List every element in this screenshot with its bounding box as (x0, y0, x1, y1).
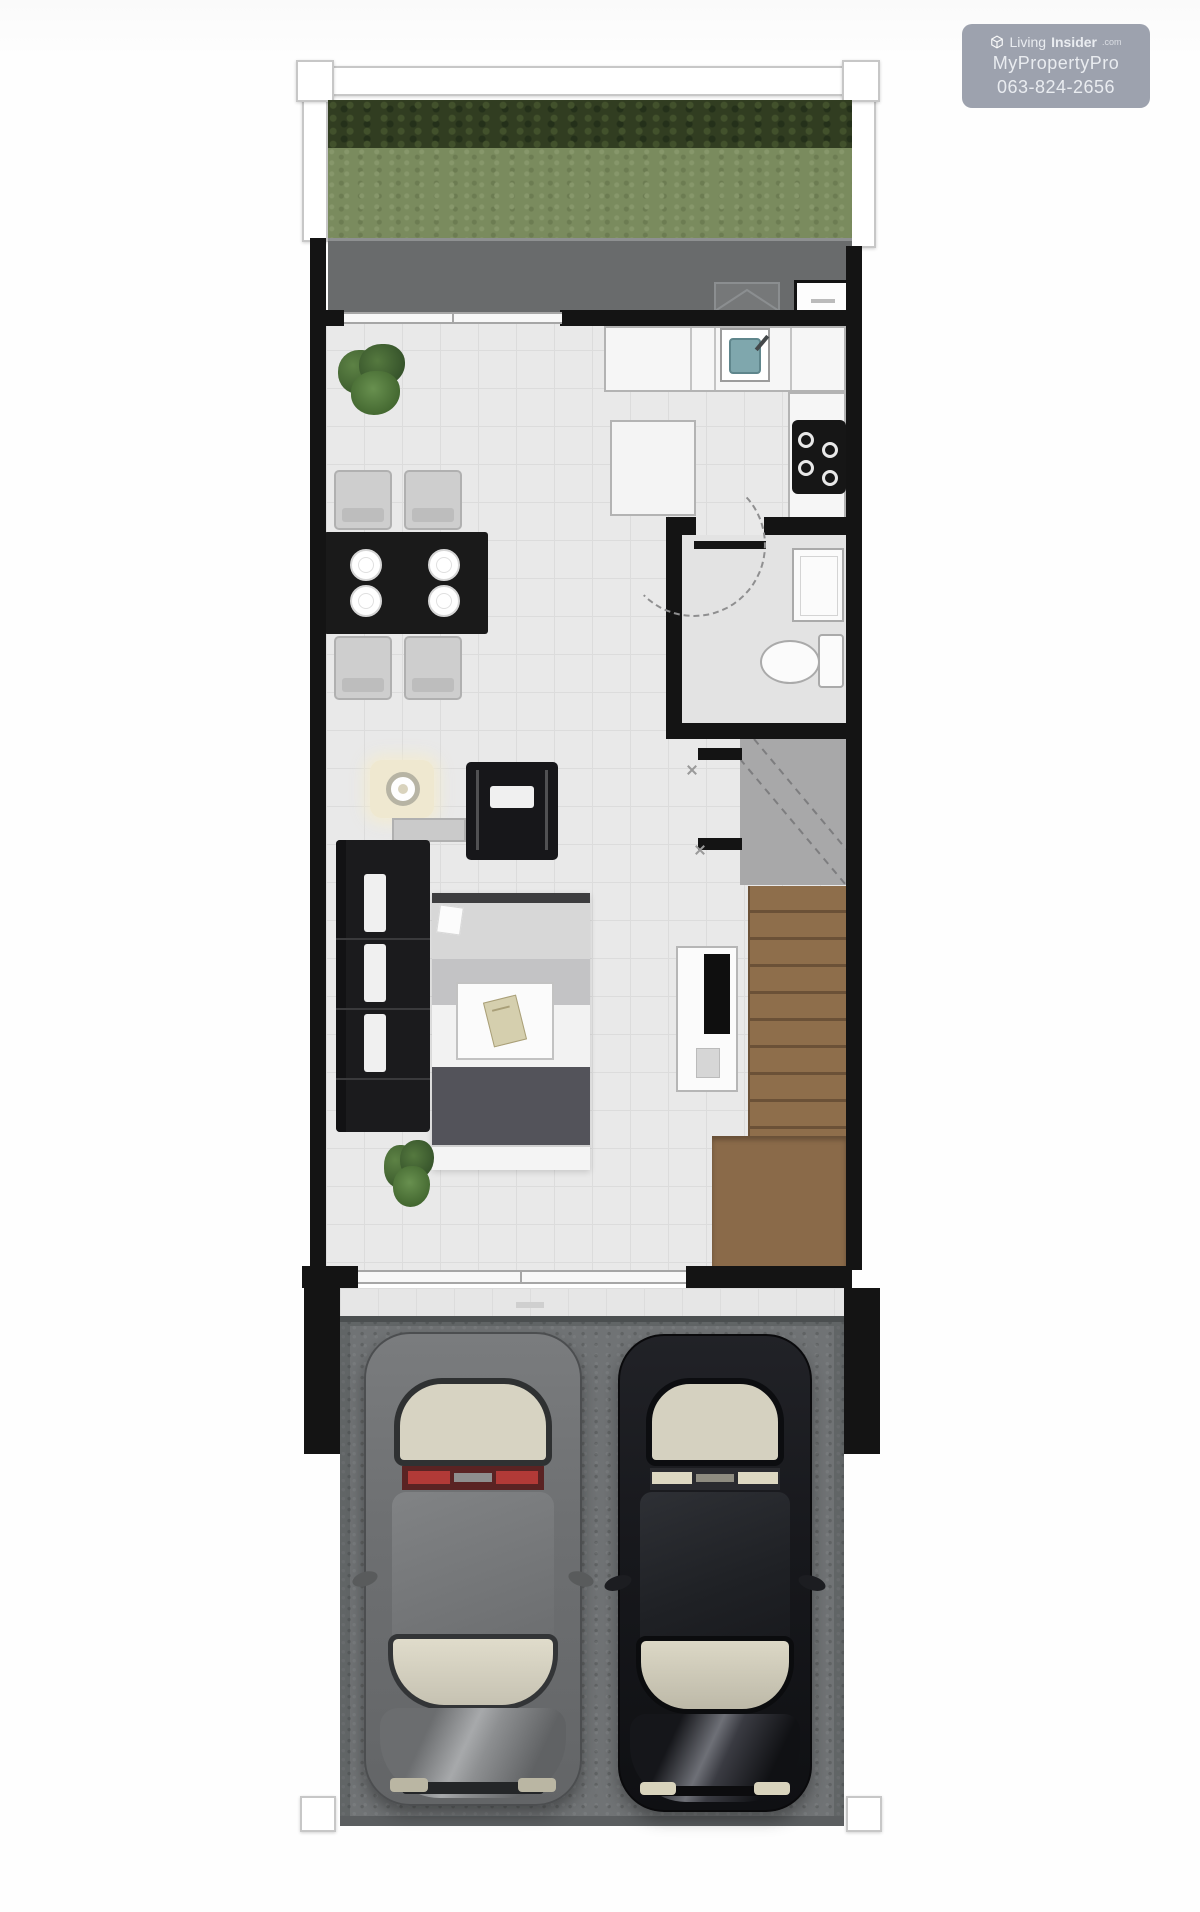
exterior-wall-left (310, 238, 326, 1270)
counter-divider (790, 328, 792, 390)
fence-post-left (296, 60, 334, 102)
fence-rail-top (300, 66, 860, 96)
ottoman (392, 818, 466, 842)
wall-stub (310, 310, 344, 326)
livinginsider-logo-icon (990, 35, 1004, 49)
armchair (466, 762, 558, 860)
garden-grass (328, 148, 852, 238)
terrace-sliding-door (344, 312, 562, 324)
sofa-cushion-gap (364, 944, 386, 1002)
indoor-plant (338, 344, 408, 416)
armchair-pillow (490, 786, 534, 808)
car-rear-window (646, 1378, 784, 1466)
chair-seat (412, 678, 454, 692)
staircase-treads (748, 886, 846, 1136)
door-tick (452, 314, 454, 322)
stove-burner (822, 470, 838, 486)
car-windshield (388, 1634, 558, 1710)
rug-pillow (436, 904, 464, 935)
stove-burner (798, 460, 814, 476)
rug-band (432, 893, 590, 903)
rug-band (432, 1145, 590, 1170)
car-windshield (636, 1636, 794, 1714)
plate (428, 585, 460, 617)
ac-unit-vent (811, 299, 835, 303)
chair-seat (342, 678, 384, 692)
car-plate (454, 1473, 492, 1482)
watermark-brand-suffix: .com (1102, 37, 1122, 47)
storage-hatch-lines (740, 739, 846, 885)
understair-storage (740, 739, 846, 885)
stove-burner (822, 442, 838, 458)
rear-wall-right (686, 1266, 852, 1288)
table-book (483, 995, 527, 1048)
hatch-x-mark (694, 844, 706, 856)
watermark-phone: 063-824-2656 (997, 77, 1115, 98)
floor-lamp (386, 772, 420, 806)
sofa (336, 840, 430, 1132)
sofa-armrest (336, 840, 346, 1132)
hatch-x-mark (686, 764, 698, 776)
watermark-badge: LivingInsider.com MyPropertyPro 063-824-… (962, 24, 1150, 108)
stove-cooktop (792, 420, 846, 494)
garage-wall-left (304, 1288, 340, 1454)
counter-divider (690, 328, 692, 390)
sofa-seam (336, 938, 430, 940)
exterior-wall-right (846, 246, 862, 1270)
watermark-brand-line: LivingInsider.com (990, 34, 1121, 50)
rear-wall-left (302, 1266, 358, 1288)
shower-tray (792, 548, 844, 622)
watermark-agent-name: MyPropertyPro (993, 53, 1120, 74)
dining-chair (404, 470, 462, 530)
toilet-tank (818, 634, 844, 688)
car-taillight (652, 1472, 692, 1484)
hedge (328, 100, 852, 148)
stove-burner (798, 432, 814, 448)
watermark-brand-bold: Insider (1051, 34, 1097, 50)
car-taillight-band (650, 1468, 780, 1490)
dining-chair (404, 636, 462, 700)
porch-step-mark (516, 1302, 544, 1308)
sink-basin (729, 338, 761, 374)
watermark-brand-prefix: Living (1009, 34, 1046, 50)
front-wall-top (560, 310, 850, 326)
wall-stub (698, 748, 742, 760)
console-item (696, 1048, 720, 1078)
dining-chair (334, 636, 392, 700)
plate (350, 549, 382, 581)
terrace-skylight-mark (714, 282, 780, 312)
chair-seat (412, 508, 454, 522)
car-rear-window (394, 1378, 552, 1466)
plate (350, 585, 382, 617)
bathroom-wall (666, 723, 862, 739)
tv-screen (704, 954, 730, 1034)
indoor-plant (384, 1140, 436, 1208)
car-headlight (754, 1782, 790, 1795)
rug-band (432, 1067, 590, 1145)
porch-floor (340, 1288, 844, 1318)
car-headlight (640, 1782, 676, 1795)
counter-divider (714, 328, 716, 390)
sofa-cushion-gap (364, 874, 386, 932)
plate (428, 549, 460, 581)
armchair-slat (476, 770, 479, 850)
toilet-bowl (760, 640, 820, 684)
kitchen-sink (720, 328, 770, 382)
car-taillight (408, 1471, 450, 1484)
car-headlight (518, 1778, 556, 1792)
gate-post-right (846, 1796, 882, 1832)
gate-post-left (300, 1796, 336, 1832)
car-taillight (738, 1472, 778, 1484)
dining-chair (334, 470, 392, 530)
car-headlight (390, 1778, 428, 1792)
door-swing-arc (622, 473, 766, 617)
tv-console (676, 946, 738, 1092)
chair-seat (342, 508, 384, 522)
floor-lamp-glow (370, 760, 434, 818)
staircase-landing (712, 1136, 846, 1268)
garage-edge (340, 1816, 844, 1826)
car-taillight (496, 1471, 538, 1484)
sofa-cushion-gap (364, 1014, 386, 1072)
car-black (618, 1334, 812, 1812)
sofa-seam (336, 1078, 430, 1080)
coffee-table (456, 982, 554, 1060)
fence-post-right (842, 60, 880, 102)
porch-sliding-door (358, 1270, 686, 1284)
car-plate (696, 1474, 734, 1482)
book-line (492, 1005, 510, 1011)
car-gray (364, 1332, 582, 1806)
sofa-seam (336, 1008, 430, 1010)
garage-wall-right (844, 1288, 880, 1454)
armchair-slat (545, 770, 548, 850)
shower-glass (800, 556, 838, 616)
lamp-center (398, 784, 408, 794)
floorplan-image: LivingInsider.com MyPropertyPro 063-824-… (0, 0, 1200, 1912)
door-tick (520, 1272, 522, 1282)
dining-table (324, 532, 488, 634)
car-taillight-band (402, 1466, 544, 1490)
